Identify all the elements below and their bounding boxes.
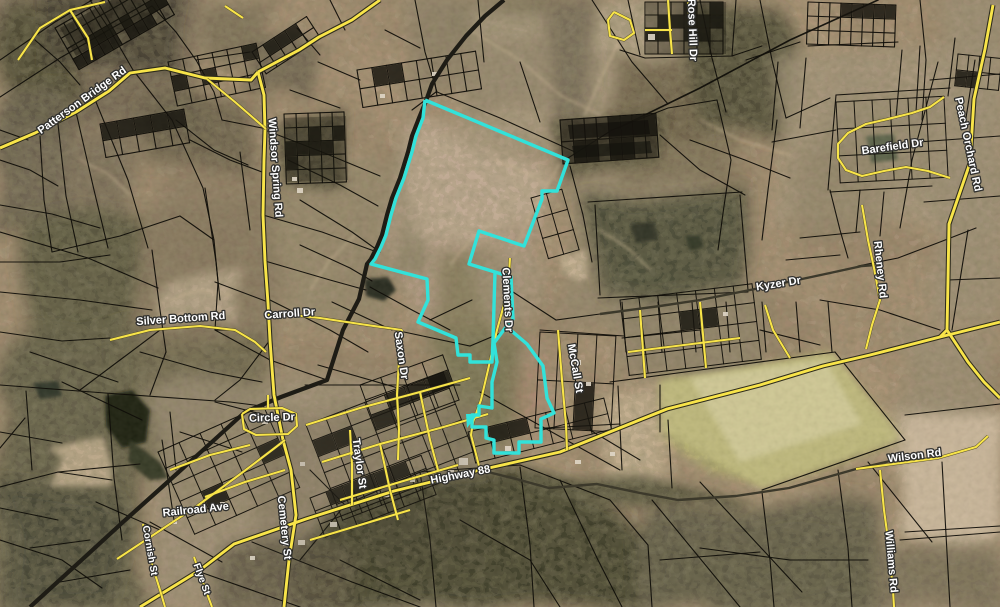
svg-text:Circle Dr: Circle Dr [249, 411, 296, 425]
svg-text:Rose Hill Dr: Rose Hill Dr [685, 0, 699, 62]
